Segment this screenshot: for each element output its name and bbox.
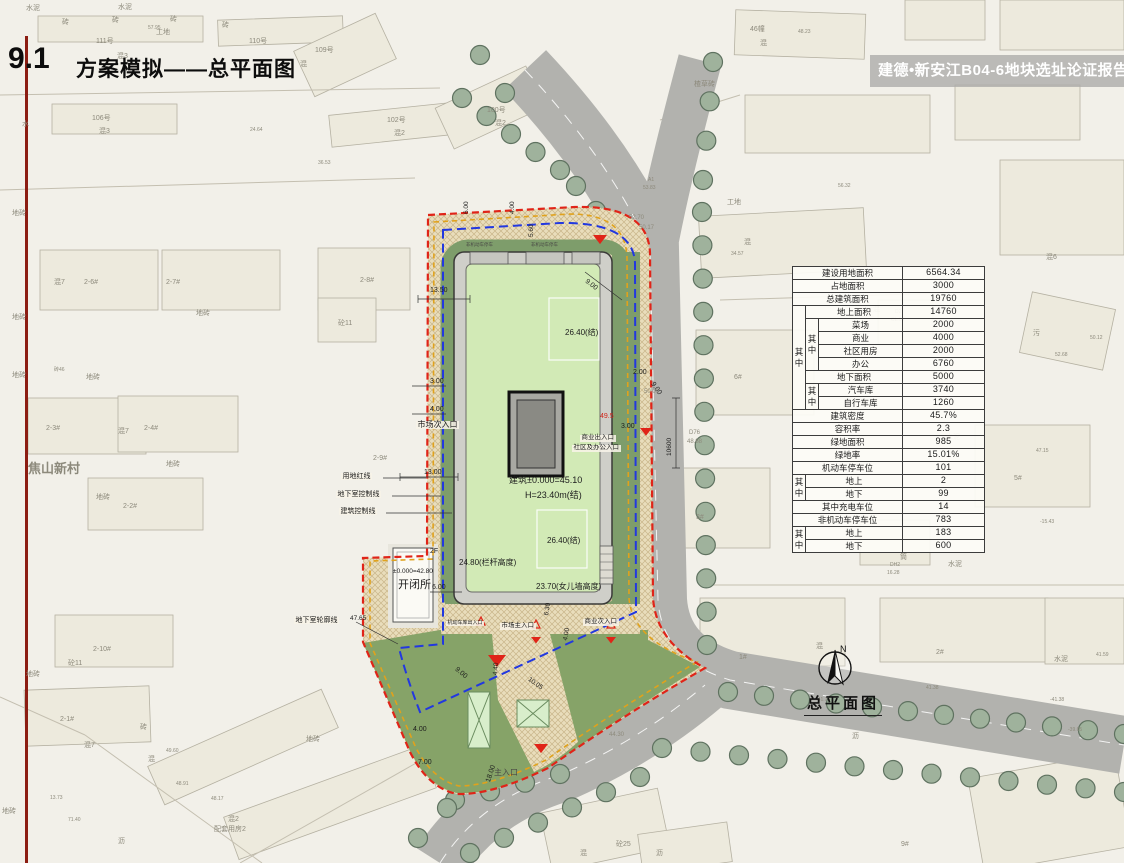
stat-label: 机动车停车位 xyxy=(793,462,903,475)
stat-label: 占地面积 xyxy=(793,280,903,293)
stat-label: 办公 xyxy=(819,358,903,371)
stat-value: 45.7% xyxy=(903,410,985,423)
table-row: 总建筑面积19760 xyxy=(793,293,985,306)
stat-value: 15.01% xyxy=(903,449,985,462)
report-title-text: 建德•新安江B04-6地块选址论证报告暨 xyxy=(878,62,1124,79)
stat-value: 3740 xyxy=(903,384,985,397)
stat-value: 2 xyxy=(903,475,985,488)
stat-label: 总建筑面积 xyxy=(793,293,903,306)
table-row: 占地面积3000 xyxy=(793,280,985,293)
stat-label: 容积率 xyxy=(793,423,903,436)
stat-value: 985 xyxy=(903,436,985,449)
main-building xyxy=(454,252,613,604)
stat-label: 其中 xyxy=(793,527,806,553)
stat-label: 其中 xyxy=(793,475,806,501)
stat-label: 地上 xyxy=(806,475,903,488)
table-row: 绿地面积985 xyxy=(793,436,985,449)
table-row: 其中地上面积14760 xyxy=(793,306,985,319)
table-row: 商业4000 xyxy=(793,332,985,345)
stat-value: 101 xyxy=(903,462,985,475)
stat-label: 其中 xyxy=(806,384,819,410)
stat-label: 绿地率 xyxy=(793,449,903,462)
stat-value: 6564.34 xyxy=(903,267,985,280)
stat-label: 自行车库 xyxy=(819,397,903,410)
table-row: 机动车停车位101 xyxy=(793,462,985,475)
stat-value: 6760 xyxy=(903,358,985,371)
stat-label: 建筑密度 xyxy=(793,410,903,423)
stat-label: 汽车库 xyxy=(819,384,903,397)
table-row: 地下600 xyxy=(793,540,985,553)
stat-value: 4000 xyxy=(903,332,985,345)
stat-label: 社区用房 xyxy=(819,345,903,358)
courtyard-lightwell xyxy=(509,392,563,476)
table-row: 自行车库1260 xyxy=(793,397,985,410)
stat-value: 14760 xyxy=(903,306,985,319)
stat-label: 绿地面积 xyxy=(793,436,903,449)
stat-label: 商业 xyxy=(819,332,903,345)
drawing-caption: 总平面图 xyxy=(804,692,882,716)
section-number: 9.1 xyxy=(8,42,50,76)
stat-label: 菜场 xyxy=(819,319,903,332)
stat-value: 14 xyxy=(903,501,985,514)
table-row: 社区用房2000 xyxy=(793,345,985,358)
stat-label: 地上面积 xyxy=(806,306,903,319)
north-label: N xyxy=(840,644,847,654)
table-row: 其中菜场2000 xyxy=(793,319,985,332)
page-accent-rule xyxy=(25,36,28,863)
stat-value: 1260 xyxy=(903,397,985,410)
page-title: 方案模拟——总平面图 xyxy=(76,53,296,83)
stat-value: 99 xyxy=(903,488,985,501)
stairs xyxy=(600,546,613,584)
stat-value: 2000 xyxy=(903,345,985,358)
table-row: 建设用地面积6564.34 xyxy=(793,267,985,280)
report-page: 水泥水泥砖砖砖砖57.95111号混3工地110号109号混46幢混48.23楂… xyxy=(0,0,1124,863)
stat-label: 非机动车停车位 xyxy=(793,514,903,527)
table-row: 其中地上2 xyxy=(793,475,985,488)
stat-value: 19760 xyxy=(903,293,985,306)
table-row: 容积率2.3 xyxy=(793,423,985,436)
table-row: 绿地率15.01% xyxy=(793,449,985,462)
stat-value: 3000 xyxy=(903,280,985,293)
stat-value: 5000 xyxy=(903,371,985,384)
table-row: 办公6760 xyxy=(793,358,985,371)
table-row: 其中充电车位14 xyxy=(793,501,985,514)
stat-label: 建设用地面积 xyxy=(793,267,903,280)
table-row: 地下面积5000 xyxy=(793,371,985,384)
project-stats-table: 建设用地面积6564.34占地面积3000总建筑面积19760其中地上面积147… xyxy=(792,266,985,553)
stat-value: 600 xyxy=(903,540,985,553)
south-walkway xyxy=(441,604,640,634)
table-row: 其中汽车库3740 xyxy=(793,384,985,397)
table-row: 地下99 xyxy=(793,488,985,501)
stat-label: 其中 xyxy=(806,319,819,371)
stat-label: 地下 xyxy=(806,540,903,553)
table-row: 建筑密度45.7% xyxy=(793,410,985,423)
stat-value: 183 xyxy=(903,527,985,540)
north-road-branch xyxy=(655,60,700,250)
stat-value: 2.3 xyxy=(903,423,985,436)
table-row: 其中地上183 xyxy=(793,527,985,540)
report-title-banner: 建德•新安江B04-6地块选址论证报告暨 xyxy=(870,55,1124,87)
table-row: 非机动车停车位783 xyxy=(793,514,985,527)
stat-value: 783 xyxy=(903,514,985,527)
stat-label: 地下 xyxy=(806,488,903,501)
stat-value: 2000 xyxy=(903,319,985,332)
stat-label: 地下面积 xyxy=(806,371,903,384)
stat-label: 其中充电车位 xyxy=(793,501,903,514)
stat-label: 地上 xyxy=(806,527,903,540)
stat-label: 其中 xyxy=(793,306,806,410)
